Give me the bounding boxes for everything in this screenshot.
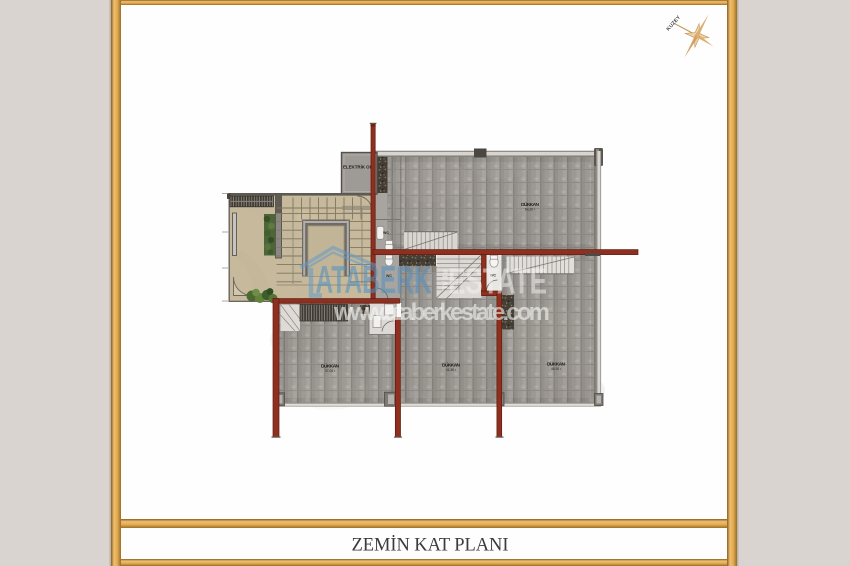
svg-text:www.ataberkestate.com: www.ataberkestate.com (333, 299, 550, 326)
svg-text:ESTATE: ESTATE (448, 261, 547, 302)
svg-text:ELEKTRİK OD.: ELEKTRİK OD. (343, 165, 374, 170)
svg-text:64,20 ²: 64,20 ² (525, 208, 536, 212)
svg-text:ZEMİN KAT PLANI: ZEMİN KAT PLANI (352, 535, 509, 556)
svg-text:WC: WC (383, 231, 389, 235)
svg-text:41,50 ²: 41,50 ² (446, 368, 457, 372)
svg-text:ATABERK: ATABERK (316, 259, 432, 302)
svg-text:REAL: REAL (441, 270, 448, 292)
svg-text:37,00 ²: 37,00 ² (325, 369, 336, 373)
svg-text:46,30 ²: 46,30 ² (551, 367, 562, 371)
